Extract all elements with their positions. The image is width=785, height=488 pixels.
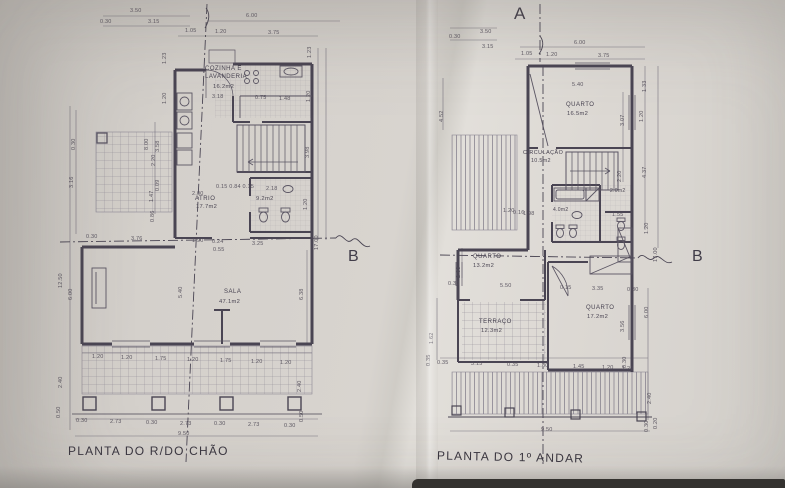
dimension-label: 0.35 [507, 362, 519, 368]
section-marker-b-left: B [348, 248, 359, 266]
room-label-circulacao: CIRCULAÇÃO [523, 150, 563, 157]
dimension-label: 1.45 [573, 364, 585, 370]
dimension-label: 0.86 [150, 210, 156, 222]
dimension-label: 9.50 [541, 427, 553, 433]
dimension-label: 4.52 [439, 110, 445, 122]
room-area-atrio: 17.7m2 [196, 204, 217, 210]
dimension-label: 3.50 [480, 29, 492, 35]
room-area-wc: 9.2m2 [256, 196, 274, 202]
dimension-label: 2.73 [248, 422, 260, 428]
dimension-label: 17.00 [314, 235, 320, 250]
dimension-label: 2.40 [647, 392, 653, 404]
dimension-label: 1.20 [251, 359, 263, 365]
first-floor-plan [437, 4, 672, 464]
dimension-label: 0.35 [426, 354, 432, 366]
dimension-label: 3.75 [598, 53, 610, 59]
dimension-label: 4.37 [642, 166, 648, 178]
dimension-label: 0.50 [56, 406, 62, 418]
dimension-label: 12.50 [58, 273, 64, 288]
porch-columns [72, 397, 322, 414]
dimension-label: 3.15 [482, 44, 494, 50]
dimension-label: 0.30 [449, 34, 461, 40]
dimension-label: 0.30 [86, 234, 98, 240]
dimension-label: 2.88 [456, 266, 462, 278]
room-label-terraco: TERRAÇO [479, 319, 512, 327]
dimension-label: 1.05 [521, 51, 533, 57]
dimension-label: 8.00 [144, 138, 150, 150]
dimension-label: 3.75 [268, 30, 280, 36]
dimension-label: 1.20 [546, 52, 558, 58]
dimension-label: 3.15 [471, 361, 483, 367]
dimension-label: 1.33 [642, 80, 648, 92]
floor-plan-drawing [0, 0, 785, 488]
dimension-label: 2.20 [617, 170, 623, 182]
dimension-label: 1.05 [185, 28, 197, 34]
dimension-label: 2.00 [192, 191, 204, 197]
dimension-label: 0.35 [437, 360, 449, 366]
room-area-kitchen: 16.2m2 [213, 84, 234, 90]
dimension-label: 0.30 [448, 281, 460, 287]
dimension-label: 1.20 [92, 354, 104, 360]
dimension-label: 1.20 [602, 365, 614, 371]
dimension-label: 2.18 [266, 186, 278, 192]
dimension-label: 9.50 [178, 431, 190, 437]
dimension-label: 2.73 [180, 421, 192, 427]
dimension-label: 1.20 [162, 92, 168, 104]
table-edge [412, 479, 785, 488]
dimension-label: 6.00 [246, 13, 258, 19]
dimension-label: 0.09 [155, 179, 161, 191]
dimension-label: 0.50 [299, 410, 305, 422]
dimension-label: 1.20 [639, 110, 645, 122]
dimension-label: 3.58 [155, 140, 161, 152]
dimension-label: 1.20 [121, 355, 133, 361]
dimension-label: 0.30 [76, 418, 88, 424]
dimension-label: 1.75 [155, 356, 167, 362]
dimension-label: 1.20 [280, 360, 292, 366]
dimension-label: 1.23 [307, 46, 313, 58]
section-marker-a: A [514, 4, 525, 24]
dimension-label: 1.20 [215, 29, 227, 35]
dimension-label: 1.20 [187, 357, 199, 363]
dimension-label: 1.98 [523, 211, 535, 217]
dimension-label: 0.15 [560, 285, 572, 291]
dimension-label: 1.20 [644, 222, 650, 234]
dimension-label: 3.98 [305, 146, 311, 158]
dimension-label: 3.15 [148, 19, 160, 25]
dimension-label: 3.25 [252, 241, 264, 247]
dimension-label: 3.16 [69, 176, 75, 188]
dimension-label: 2.20 [151, 154, 157, 166]
dimension-label: 6.00 [68, 288, 74, 300]
dimension-label: 5.50 [500, 283, 512, 289]
dimension-label: 1.48 [279, 96, 291, 102]
room-area-circulacao: 10.5m2 [531, 158, 551, 164]
dimension-label: 6.00 [574, 40, 586, 46]
dimension-label: 0.15 0.84 0.15 [216, 184, 254, 190]
dimension-label: 0.30 [627, 287, 639, 293]
dimension-label: 1.20 [303, 198, 309, 210]
dimension-label: 3.56 [620, 320, 626, 332]
room-label-atrio: ATRIO [195, 196, 215, 204]
floor-plan-photo: A B B COZINHA E LAVANDERIA 16.2m2 ATRIO … [0, 0, 785, 488]
dimension-label: 0.24 [212, 239, 224, 245]
dimension-label: 2.40 [297, 380, 303, 392]
room-area-sala: 47.1m2 [219, 299, 240, 305]
dimension-label: 1.20 [306, 90, 312, 102]
dimension-label: 0.75 [255, 95, 267, 101]
stairs [237, 125, 305, 172]
room-label-kitchen: COZINHA E LAVANDERIA [205, 66, 247, 82]
dimension-label: 3.50 [130, 8, 142, 14]
room-area-quarto1: 16.5m2 [567, 111, 588, 117]
dimension-label: 1.90 [192, 238, 204, 244]
dimension-label: 0.30 [214, 421, 226, 427]
dimension-label: 0.30 [644, 420, 650, 432]
dimension-label: 3.35 [592, 286, 604, 292]
room-area-shower: 2.0m2 [610, 188, 625, 194]
dimension-label: 0.30 [71, 138, 77, 150]
room-area-quarto3: 17.2m2 [587, 314, 608, 320]
room-label-sala: SALA [224, 289, 241, 297]
dimension-label: 17.00 [653, 247, 659, 262]
dimension-label: 1.23 [162, 52, 168, 64]
section-marker-b-right: B [692, 248, 703, 266]
dimension-label: 1.62 [429, 332, 435, 344]
dimension-label: 1.75 [220, 358, 232, 364]
room-label-quarto3: QUARTO [586, 305, 614, 313]
dimension-label: 1.47 [149, 190, 155, 202]
dimension-label: 3.07 [620, 114, 626, 126]
ground-floor-caption: PLANTA DO R/DO CHÃO [68, 444, 229, 458]
dimension-label: 1.55 [612, 212, 624, 218]
dimension-label: 3.18 [212, 94, 224, 100]
dimension-label: 1.20 [622, 366, 634, 372]
dimension-label: 1.80 [537, 363, 549, 369]
dimension-label: 2.40 [58, 376, 64, 388]
room-label-quarto1: QUARTO [566, 102, 594, 110]
room-area-terraco: 12.3m2 [481, 328, 502, 334]
dimension-label: 6.00 [644, 306, 650, 318]
room-area-quarto2: 13.2m2 [473, 263, 494, 269]
dimension-label: 5.40 [572, 82, 584, 88]
dimension-label: 0.30 [100, 19, 112, 25]
dimension-label: 0.55 [213, 247, 225, 253]
room-area-bathroom: 4.0m2 [553, 207, 568, 213]
dimension-label: 2.73 [110, 419, 122, 425]
dimension-label: 0.30 [284, 423, 296, 429]
dimension-label: 0.30 [146, 420, 158, 426]
dimension-label: 3.76 [131, 236, 143, 242]
dimension-label: 5.40 [178, 286, 184, 298]
dimension-label: 0.20 [653, 417, 659, 429]
room-label-quarto2: QUARTO [473, 254, 501, 262]
dimension-label: 6.38 [299, 288, 305, 300]
